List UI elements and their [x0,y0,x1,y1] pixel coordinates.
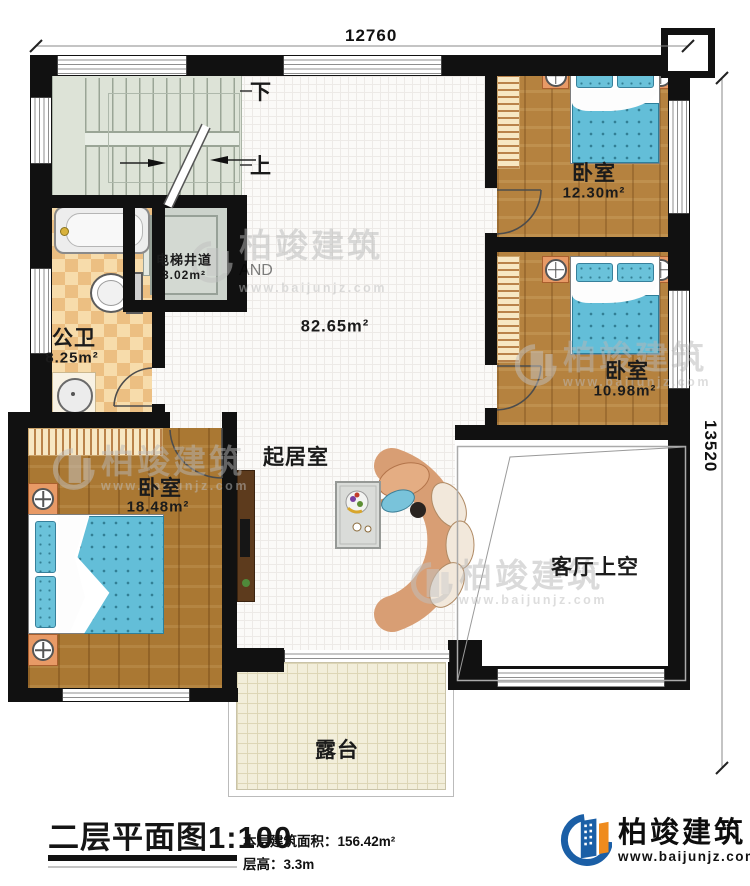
stair-arrow-icon [148,159,166,167]
caption-bar: 二层平面图1:100 本层建筑面积：156.42m² 层高：3.3m 柏竣建筑 … [0,806,750,886]
stair-down-label: 下 [250,76,272,106]
company-logo-icon [560,810,612,872]
living-void-label: 客厅上空 [551,551,639,581]
bedroom1-area: 12.30m² [563,185,626,202]
bedroom3-door[interactable] [170,428,222,478]
company-logo-text: 柏竣建筑 www.baijunjz.com [618,818,750,863]
stair-break-line [164,124,202,204]
title-underline-thin [48,866,237,868]
company-logo: 柏竣建筑 www.baijunjz.com [560,810,750,872]
elevator-label: 电梯井道 [156,250,212,269]
bathroom-door[interactable] [114,368,152,406]
bedroom1-label: 卧室 [572,157,616,187]
stair-break-line [172,128,210,208]
terrace-label: 露台 [315,734,359,764]
floor-plan-canvas: 柏竣建筑 AND www.baijunjz.com 柏竣建筑 www.baiju… [0,0,750,886]
bedroom3-area: 18.48m² [127,499,190,516]
linework-overlay [0,0,750,886]
elevator-area: 3.02m² [162,268,206,282]
hall-area: 82.65m² [301,318,369,337]
dimension-right-value: 13520 [700,420,720,472]
title-underline-thick [48,855,237,861]
company-name: 柏竣建筑 [618,818,750,848]
bathroom-area: 8.25m² [45,350,99,367]
bedroom2-label: 卧室 [605,355,649,385]
bedroom2-door[interactable] [497,366,541,410]
floor-height-text: 层高：3.3m [243,853,314,873]
stair-up-label: 上 [250,150,272,180]
stair-arrow-icon [210,156,228,164]
stair-break-mask [168,126,206,206]
bedroom1-door[interactable] [497,190,541,234]
company-website: www.baijunjz.com [618,849,750,864]
bathroom-label: 公卫 [52,322,96,352]
bedroom3-label: 卧室 [138,472,182,502]
bedroom2-area: 10.98m² [594,383,657,400]
hall-label: 起居室 [263,441,329,471]
dimension-top-value: 12760 [345,26,397,46]
floor-area-text: 本层建筑面积：156.42m² [243,830,395,850]
plan-title-text: 二层平面图 [48,820,208,855]
